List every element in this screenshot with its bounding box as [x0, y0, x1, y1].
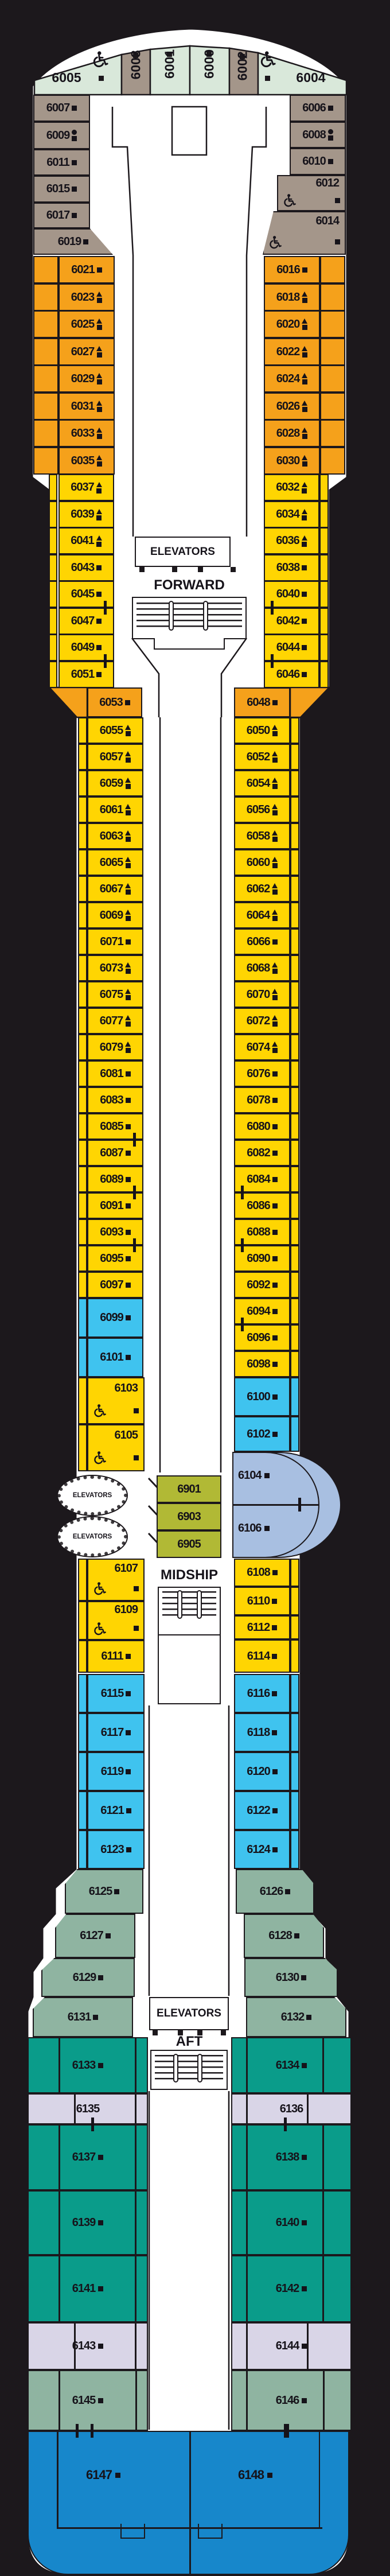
square-icon	[72, 160, 77, 165]
forward-stairs-landing	[154, 638, 225, 650]
cabin-6137[interactable]: 6137	[28, 2124, 148, 2190]
square-icon	[126, 1098, 131, 1103]
cabin-6079[interactable]: 6079	[87, 1034, 143, 1060]
cabin-6092[interactable]: 6092	[234, 1272, 290, 1298]
balcony	[78, 717, 87, 744]
square-icon	[301, 1975, 306, 1980]
cabin-6037[interactable]: 6037	[58, 474, 114, 501]
cabin-6016[interactable]: 6016	[264, 256, 320, 283]
balcony	[290, 1166, 299, 1192]
cabin-6059[interactable]: 6059	[87, 770, 143, 796]
triangle-square-icon	[302, 373, 307, 384]
square-icon	[126, 1355, 131, 1360]
cabin-6054[interactable]: 6054	[234, 770, 290, 796]
cabin-6131[interactable]: 6131	[33, 1997, 133, 2037]
cabin-6067[interactable]: 6067	[87, 876, 143, 902]
connecting-door-mark	[104, 601, 107, 615]
balcony	[290, 1324, 299, 1351]
cabin-6066[interactable]: 6066	[234, 928, 290, 955]
connecting-door-mark	[133, 1186, 136, 1199]
cabin-6063[interactable]: 6063	[87, 823, 143, 849]
cabin-6903[interactable]: 6903	[157, 1503, 221, 1530]
balcony	[49, 581, 57, 608]
cabin-6062[interactable]: 6062	[234, 876, 290, 902]
connecting-door-mark	[241, 1318, 244, 1331]
balcony	[78, 1791, 87, 1830]
balcony	[290, 1008, 299, 1034]
balcony	[320, 283, 345, 311]
cabin-6140[interactable]: 6140	[231, 2190, 352, 2255]
triangle-square-icon	[302, 509, 307, 520]
square-icon	[126, 939, 131, 945]
cabin-6068[interactable]: 6068	[234, 955, 290, 981]
cabin-6002[interactable]: 6002	[235, 52, 251, 81]
wheelchair-icon	[268, 235, 282, 249]
cabin-6033[interactable]: 6033	[58, 419, 115, 447]
cabin-6052[interactable]: 6052	[234, 744, 290, 770]
cabin-6038[interactable]: 6038	[264, 554, 319, 581]
cabin-6061[interactable]: 6061	[87, 796, 143, 823]
balcony	[290, 1140, 299, 1166]
cabin-6144[interactable]: 6144	[231, 2322, 352, 2370]
cabin-6057[interactable]: 6057	[87, 744, 143, 770]
cabin-6056[interactable]: 6056	[234, 796, 290, 823]
balcony	[78, 1601, 87, 1640]
cabin-6125[interactable]: 6125	[65, 1869, 143, 1914]
square-icon	[302, 672, 307, 677]
cabin-6114[interactable]: 6114	[234, 1639, 290, 1673]
cabin-6081[interactable]: 6081	[87, 1060, 143, 1087]
square-icon	[126, 1808, 131, 1813]
triangle-square-icon	[96, 428, 102, 439]
cabin-6022[interactable]: 6022	[264, 338, 320, 366]
cabin-6142[interactable]: 6142	[231, 2255, 352, 2322]
triangle-square-icon	[302, 455, 307, 467]
balcony	[33, 283, 58, 311]
cabin-6124[interactable]: 6124	[234, 1830, 290, 1869]
wheelchair-icon	[93, 1404, 107, 1417]
cabin-6006[interactable]: 6006	[290, 95, 346, 122]
triangle-square-icon	[125, 857, 131, 868]
square-icon	[272, 700, 278, 705]
cabin-6050[interactable]: 6050	[234, 717, 290, 744]
balcony	[290, 1087, 299, 1113]
balcony	[290, 876, 299, 902]
aft-stairs	[150, 2050, 228, 2090]
cabin-6008[interactable]: 6008	[290, 122, 346, 148]
square-icon	[126, 1769, 131, 1774]
balcony	[78, 1674, 87, 1713]
square-icon	[126, 1177, 131, 1182]
cabin-6073[interactable]: 6073	[87, 955, 143, 981]
cabin-6102[interactable]: 6102	[234, 1416, 290, 1452]
triangle-square-icon	[272, 778, 278, 789]
balcony	[290, 1298, 299, 1324]
square-icon	[126, 1730, 131, 1735]
connecting-door-mark	[241, 1238, 244, 1252]
balcony	[290, 796, 299, 823]
cabin-6011[interactable]: 6011	[33, 149, 90, 176]
square-icon	[134, 1408, 139, 1413]
cabin-6103[interactable]: 6103	[87, 1377, 145, 1424]
cabin-6139[interactable]: 6139	[28, 2190, 148, 2255]
stern-suites-block	[28, 2431, 349, 2575]
cabin-6031[interactable]: 6031	[58, 393, 115, 420]
square-icon	[272, 1625, 277, 1630]
cabin-6099[interactable]: 6099	[87, 1298, 143, 1338]
cabin-6069[interactable]: 6069	[87, 902, 143, 928]
cabin-6015[interactable]: 6015	[33, 176, 90, 203]
wheelchair-icon	[92, 50, 109, 68]
cabin-6007[interactable]: 6007	[33, 95, 90, 122]
square-icon	[285, 1889, 290, 1894]
cabin-6128[interactable]: 6128	[244, 1914, 324, 1958]
square-icon	[335, 198, 340, 203]
bow-center-void	[172, 107, 206, 155]
square-icon	[306, 2015, 311, 2020]
square-icon	[272, 1599, 277, 1604]
cabin-6104[interactable]: 6104	[238, 1469, 270, 1482]
cabin-6041[interactable]: 6041	[58, 527, 114, 554]
square-icon	[126, 1203, 131, 1209]
square-icon	[126, 1151, 131, 1156]
balcony	[290, 928, 299, 955]
cabin-6098[interactable]: 6098	[234, 1351, 290, 1377]
balcony	[33, 256, 58, 283]
balcony	[320, 419, 345, 447]
triangle-square-icon	[302, 401, 307, 412]
cabin-6058[interactable]: 6058	[234, 823, 290, 849]
wheelchair-icon	[93, 1622, 107, 1635]
cabin-6010[interactable]: 6010	[290, 148, 346, 175]
cabin-6121[interactable]: 6121	[87, 1791, 145, 1830]
triangle-square-icon	[302, 346, 307, 358]
triangle-square-icon	[125, 962, 131, 974]
balcony	[78, 1140, 87, 1166]
wheelchair-icon	[283, 193, 297, 207]
cabin-6048[interactable]: 6048	[234, 687, 290, 717]
connecting-door-mark	[298, 1498, 301, 1512]
cabin-6115[interactable]: 6115	[87, 1674, 145, 1713]
cabin-6080[interactable]: 6080	[234, 1113, 290, 1140]
cabin-6072[interactable]: 6072	[234, 1008, 290, 1034]
cabin-6043[interactable]: 6043	[58, 554, 114, 581]
balcony	[290, 1713, 299, 1752]
square-icon	[272, 1808, 278, 1813]
cabin-6146[interactable]: 6146	[231, 2370, 352, 2431]
balcony	[290, 1351, 299, 1377]
square-icon	[272, 1283, 278, 1288]
cabin-6017[interactable]: 6017	[33, 203, 90, 228]
balcony	[320, 447, 345, 475]
square-icon	[272, 1151, 278, 1156]
balcony	[290, 1377, 299, 1416]
square-icon	[272, 1256, 278, 1261]
midship-elevators-label-2: ELEVATORS	[72, 1533, 113, 1540]
cabin-6009[interactable]: 6009	[33, 122, 90, 149]
cabin-6143[interactable]: 6143	[28, 2322, 148, 2370]
cabin-6905[interactable]: 6905	[157, 1530, 221, 1558]
cabin-6012[interactable]: 6012	[277, 175, 346, 211]
balcony	[290, 1674, 299, 1713]
triangle-square-icon	[96, 482, 102, 494]
cabin-6029[interactable]: 6029	[58, 365, 115, 393]
triangle-square-icon	[125, 910, 131, 921]
square-icon	[98, 2220, 103, 2225]
triangle-square-icon	[302, 428, 307, 439]
aft-elevators-box: ELEVATORS	[149, 1997, 229, 2030]
balcony	[78, 1559, 87, 1601]
triangle-square-icon	[302, 482, 307, 494]
cabin-6004[interactable]: 6004	[280, 70, 342, 86]
triangle-square-icon	[272, 1015, 278, 1027]
cabin-6075[interactable]: 6075	[87, 981, 143, 1008]
square-icon	[72, 106, 77, 111]
cabin-6005[interactable]: 6005	[36, 70, 97, 86]
balcony	[33, 310, 58, 338]
connecting-door-mark	[284, 2117, 287, 2131]
triangle-square-icon	[125, 1015, 131, 1027]
cabin-6101[interactable]: 6101	[87, 1338, 143, 1377]
cabin-6028[interactable]: 6028	[264, 419, 320, 447]
cabin-6111[interactable]: 6111	[87, 1640, 145, 1673]
square-icon	[294, 1933, 299, 1938]
deck-plan: ELEVATORS FORWARD ELEVATORS ELEVATORS MI…	[0, 0, 390, 2576]
cabin-6135[interactable]: 6135	[28, 2093, 148, 2124]
cabin-6126[interactable]: 6126	[236, 1869, 314, 1914]
cabin-6039[interactable]: 6039	[58, 501, 114, 528]
square-icon	[272, 939, 278, 945]
balcony	[78, 1752, 87, 1791]
cabin-6034[interactable]: 6034	[264, 501, 319, 528]
cabin-6105[interactable]: 6105	[87, 1424, 145, 1471]
cabin-6145[interactable]: 6145	[28, 2370, 148, 2431]
cabin-6001[interactable]: 6001	[162, 47, 178, 81]
balcony	[78, 849, 87, 876]
cabin-6118[interactable]: 6118	[234, 1713, 290, 1752]
square-icon	[93, 2015, 98, 2020]
cabin-6138[interactable]: 6138	[231, 2124, 352, 2190]
connecting-door-mark	[271, 654, 274, 668]
cabin-6030[interactable]: 6030	[264, 447, 320, 475]
cabin-6025[interactable]: 6025	[58, 310, 115, 338]
cabin-6110[interactable]: 6110	[234, 1587, 290, 1615]
triangle-square-icon	[96, 509, 102, 520]
cabin-6065[interactable]: 6065	[87, 849, 143, 876]
cabin-6021[interactable]: 6021	[58, 256, 115, 283]
cabin-6134[interactable]: 6134	[231, 2037, 352, 2093]
cabin-6078[interactable]: 6078	[234, 1087, 290, 1113]
cabin-6032[interactable]: 6032	[264, 474, 319, 501]
balcony	[78, 1060, 87, 1087]
balcony	[33, 393, 58, 420]
cabin-6024[interactable]: 6024	[264, 365, 320, 393]
cabin-6053[interactable]: 6053	[87, 687, 142, 717]
triangle-square-icon	[125, 751, 131, 763]
cabin-6027[interactable]: 6027	[58, 338, 115, 366]
cabin-6035[interactable]: 6035	[58, 447, 115, 475]
midship-vestibule	[158, 1635, 221, 1704]
cabin-6055[interactable]: 6055	[87, 717, 143, 744]
balcony	[320, 338, 345, 366]
cabin-6060[interactable]: 6060	[234, 849, 290, 876]
balcony	[49, 634, 57, 661]
cabin-6014[interactable]: 6014	[263, 211, 346, 255]
cabin-6127[interactable]: 6127	[55, 1914, 135, 1958]
triangle-square-icon	[272, 962, 278, 974]
triangle-square-icon	[125, 725, 131, 736]
balcony	[319, 661, 329, 688]
balcony	[49, 501, 57, 528]
square-icon	[96, 592, 102, 597]
cabin-6117[interactable]: 6117	[87, 1713, 145, 1752]
square-icon	[272, 1203, 278, 1209]
square-icon	[302, 2155, 307, 2160]
cabin-6100[interactable]: 6100	[234, 1377, 290, 1416]
square-icon	[272, 1177, 278, 1182]
balcony	[49, 554, 57, 581]
cabin-6116[interactable]: 6116	[234, 1674, 290, 1713]
square-icon	[302, 2063, 307, 2068]
balcony	[78, 1377, 87, 1424]
cabin-6129[interactable]: 6129	[41, 1958, 135, 1997]
balcony	[78, 955, 87, 981]
cabin-6074[interactable]: 6074	[234, 1034, 290, 1060]
cabin-6023[interactable]: 6023	[58, 283, 115, 311]
cabin-6036[interactable]: 6036	[264, 527, 319, 554]
balcony	[78, 1830, 87, 1869]
cabin-6106[interactable]: 6106	[238, 1522, 270, 1535]
square-icon	[134, 1586, 139, 1591]
cabin-6122[interactable]: 6122	[234, 1791, 290, 1830]
cabin-6064[interactable]: 6064	[234, 902, 290, 928]
cabin-6020[interactable]: 6020	[264, 310, 320, 338]
balcony	[290, 981, 299, 1008]
balcony	[290, 1752, 299, 1791]
square-icon	[126, 1847, 131, 1852]
cabin-6147[interactable]: 6147	[86, 2468, 120, 2482]
balcony	[290, 823, 299, 849]
balcony	[78, 1272, 87, 1298]
triangle-square-icon	[272, 751, 278, 763]
cabin-6148[interactable]: 6148	[238, 2468, 272, 2482]
cabin-6109[interactable]: 6109	[87, 1601, 145, 1640]
balcony	[78, 1713, 87, 1752]
square-icon	[126, 1315, 131, 1320]
square-icon	[106, 1933, 111, 1938]
cabin-6112[interactable]: 6112	[234, 1615, 290, 1639]
balcony	[49, 474, 57, 501]
balcony	[290, 955, 299, 981]
cabin-6133[interactable]: 6133	[28, 2037, 148, 2093]
square-icon	[264, 1473, 270, 1478]
cabin-6070[interactable]: 6070	[234, 981, 290, 1008]
balcony	[319, 527, 329, 554]
midship-elevators-oval-1: ELEVATORS	[57, 1475, 128, 1516]
balcony	[49, 608, 57, 635]
balcony	[319, 581, 329, 608]
balcony	[33, 338, 58, 366]
square-icon	[96, 645, 102, 650]
balcony	[290, 1639, 299, 1673]
cabin-6082[interactable]: 6082	[234, 1140, 290, 1166]
cabin-6136[interactable]: 6136	[231, 2093, 352, 2124]
square-icon	[125, 700, 130, 705]
square-icon	[272, 1124, 278, 1129]
balcony	[319, 501, 329, 528]
cabin-6901[interactable]: 6901	[157, 1475, 221, 1503]
square-icon	[302, 592, 307, 597]
cabin-6119[interactable]: 6119	[87, 1752, 145, 1791]
balcony	[290, 1034, 299, 1060]
balcony	[290, 1559, 299, 1587]
balcony	[290, 1192, 299, 1219]
triangle-square-icon	[96, 292, 102, 303]
connecting-door-mark	[133, 1238, 136, 1252]
triangle-square-icon	[125, 830, 131, 842]
square-icon	[272, 1570, 278, 1575]
triangle-square-icon	[125, 989, 131, 1000]
triangle-square-icon	[96, 318, 102, 330]
circle-square-icon	[328, 129, 333, 141]
cabin-6018[interactable]: 6018	[264, 283, 320, 311]
balcony	[319, 634, 329, 661]
balcony	[290, 1272, 299, 1298]
square-icon	[126, 1071, 131, 1077]
square-icon	[98, 2344, 103, 2349]
wheelchair-icon	[93, 1451, 107, 1464]
cabin-6076[interactable]: 6076	[234, 1060, 290, 1087]
cabin-6141[interactable]: 6141	[28, 2255, 148, 2322]
square-icon	[126, 1230, 131, 1235]
balcony	[78, 981, 87, 1008]
cabin-6132[interactable]: 6132	[246, 1997, 346, 2037]
cabin-6083[interactable]: 6083	[87, 1087, 143, 1113]
cabin-6026[interactable]: 6026	[264, 393, 320, 420]
triangle-square-icon	[125, 1042, 131, 1053]
cabin-6000[interactable]: 6000	[202, 47, 217, 81]
wheelchair-icon	[259, 50, 276, 68]
cabin-6077[interactable]: 6077	[87, 1008, 143, 1034]
square-icon	[272, 1230, 278, 1235]
square-icon	[302, 565, 307, 570]
cabin-6130[interactable]: 6130	[244, 1958, 338, 1997]
connecting-door-mark	[271, 601, 274, 615]
square-icon	[272, 1769, 278, 1774]
connecting-door-mark	[91, 2117, 94, 2131]
cabin-6123[interactable]: 6123	[87, 1830, 145, 1869]
cabin-6120[interactable]: 6120	[234, 1752, 290, 1791]
cabin-6097[interactable]: 6097	[87, 1272, 143, 1298]
square-icon	[126, 1283, 131, 1288]
square-icon	[72, 187, 77, 192]
balcony	[78, 1113, 87, 1140]
square-icon	[335, 239, 340, 244]
balcony	[78, 1087, 87, 1113]
connecting-door-mark	[91, 2424, 93, 2438]
circle-square-icon	[72, 130, 77, 141]
wheelchair-icon	[93, 1582, 107, 1595]
cabin-6071[interactable]: 6071	[87, 928, 143, 955]
triangle-square-icon	[272, 910, 278, 921]
square-icon	[114, 1889, 119, 1894]
square-icon	[115, 2473, 120, 2478]
square-icon	[126, 1654, 131, 1659]
cabin-6003[interactable]: 6003	[128, 51, 144, 80]
square-icon	[302, 619, 307, 624]
triangle-square-icon	[125, 883, 131, 895]
triangle-square-icon	[272, 857, 278, 868]
